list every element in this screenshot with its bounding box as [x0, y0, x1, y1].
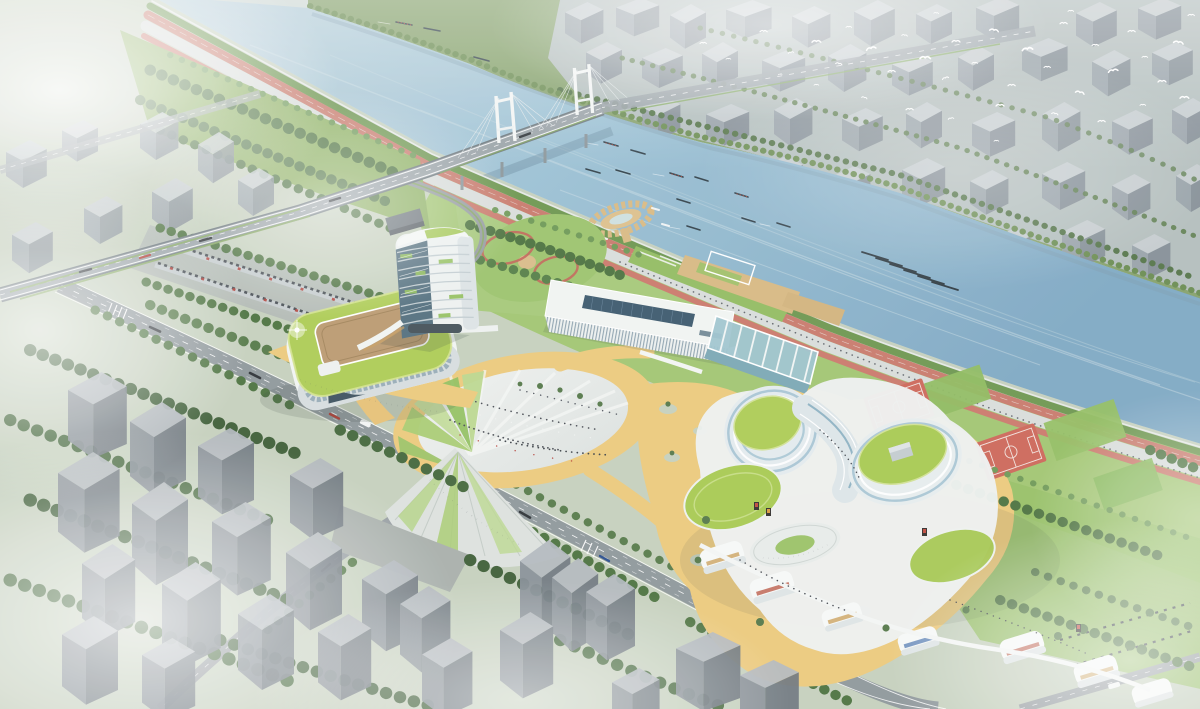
- fog-overlays: [0, 0, 1200, 709]
- rendering-canvas: [0, 0, 1200, 709]
- architectural-rendering: [0, 0, 1200, 709]
